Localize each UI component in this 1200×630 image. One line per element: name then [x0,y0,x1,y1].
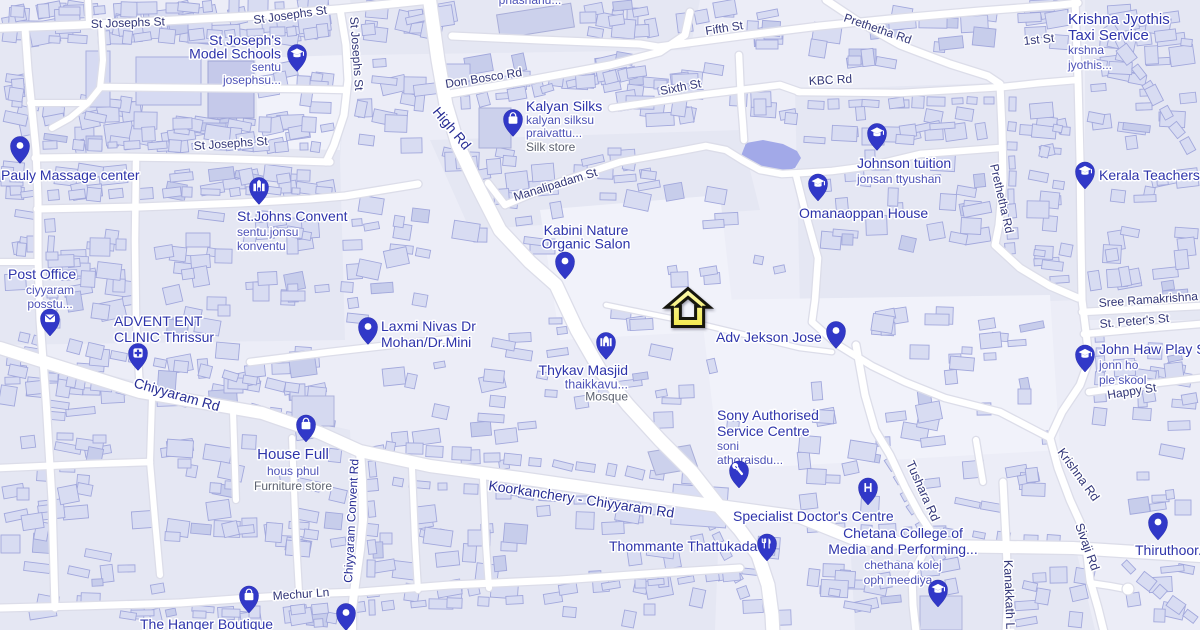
svg-text:Service Centre: Service Centre [717,423,810,439]
svg-text:hous phul: hous phul [267,464,319,478]
svg-text:athoraisdu...: athoraisdu... [717,453,783,467]
svg-text:St.Johns Convent: St.Johns Convent [237,208,348,224]
svg-text:Krishna Jyothis: Krishna Jyothis [1068,11,1170,28]
svg-text:chethana kolej: chethana kolej [864,558,941,572]
svg-text:Chetana College of: Chetana College of [843,525,963,541]
svg-text:Kalyan Silks: Kalyan Silks [526,98,602,114]
svg-text:sentu: sentu [252,60,281,74]
svg-text:jyothis...: jyothis... [1067,58,1112,72]
svg-text:Organic Salon: Organic Salon [542,236,631,252]
svg-text:soni: soni [717,439,739,453]
svg-text:Laxmi Nivas Dr: Laxmi Nivas Dr [381,318,476,334]
svg-text:Mosque: Mosque [585,390,628,404]
svg-text:konventu: konventu [237,239,286,253]
svg-text:Silk store: Silk store [526,140,576,154]
svg-text:Thykav Masjid: Thykav Masjid [539,362,628,378]
svg-text:krshna: krshna [1068,43,1104,57]
svg-text:Johnson tuition: Johnson tuition [857,155,951,171]
svg-text:Specialist Doctor's Centre: Specialist Doctor's Centre [733,508,894,524]
svg-text:The Hanger Boutique: The Hanger Boutique [140,616,273,630]
svg-text:ciyyaram: ciyyaram [26,283,74,297]
svg-text:Furniture store: Furniture store [254,479,332,493]
svg-text:Adv Jekson Jose: Adv Jekson Jose [716,329,822,345]
svg-text:Post Office: Post Office [8,266,76,282]
svg-text:Taxi Service: Taxi Service [1068,27,1149,44]
svg-text:Pauly Massage center: Pauly Massage center [1,167,140,183]
svg-text:josephsu...: josephsu... [222,73,281,87]
svg-text:House Full: House Full [257,446,329,463]
svg-text:CLINIC Thrissur: CLINIC Thrissur [114,329,214,345]
svg-text:ADVENT ENT: ADVENT ENT [114,313,203,329]
svg-text:Sony Authorised: Sony Authorised [717,407,819,423]
svg-text:Thiruthoor...: Thiruthoor... [1135,542,1200,558]
svg-text:John Haw Play S: John Haw Play S [1099,341,1200,357]
svg-text:jonn ho: jonn ho [1098,358,1139,372]
svg-text:kalyan silksu: kalyan silksu [526,113,594,127]
svg-text:Omanaoppan House: Omanaoppan House [799,205,928,221]
svg-text:Thommante Thattukada: Thommante Thattukada [609,538,758,554]
svg-text:Media and Performing...: Media and Performing... [828,541,977,557]
svg-text:Kerala Teachersw: Kerala Teachersw [1099,167,1200,183]
svg-text:phashanu...: phashanu... [499,0,562,7]
svg-text:ple skool: ple skool [1099,373,1146,387]
svg-text:Mohan/Dr.Mini: Mohan/Dr.Mini [381,334,471,350]
svg-text:sentu.jonsu: sentu.jonsu [237,225,298,239]
svg-text:St Josephs St: St Josephs St [91,14,166,31]
svg-text:KBC Rd: KBC Rd [808,72,852,88]
svg-text:Kanakkath Ln: Kanakkath Ln [1001,560,1018,630]
svg-text:praivattu...: praivattu... [526,126,582,140]
svg-text:jonsan ttyushan: jonsan ttyushan [856,172,941,186]
